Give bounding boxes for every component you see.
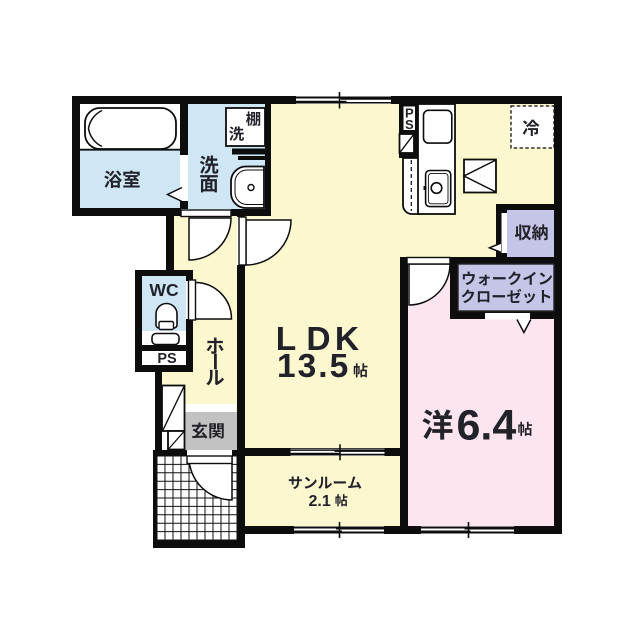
svg-text:WC: WC [149, 280, 179, 300]
svg-text:S: S [405, 117, 414, 132]
svg-text:2.1: 2.1 [309, 493, 331, 510]
svg-text:6.4: 6.4 [457, 402, 517, 450]
svg-text:PS: PS [157, 351, 177, 367]
svg-text:13.5: 13.5 [277, 348, 350, 385]
